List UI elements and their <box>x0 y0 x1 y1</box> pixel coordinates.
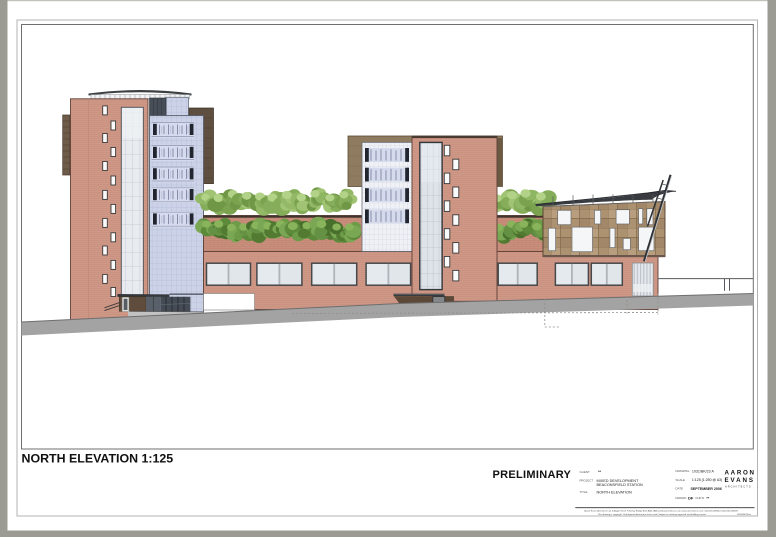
svg-text:DRAWN: DRAWN <box>676 496 687 500</box>
svg-text:1031/BK/23/xx: 1031/BK/23/xx <box>737 514 752 516</box>
svg-text:EVANS: EVANS <box>725 477 755 484</box>
svg-text:DATE: DATE <box>676 487 684 491</box>
svg-text:NORTH ELEVATION 1:125: NORTH ELEVATION 1:125 <box>22 452 174 466</box>
svg-text:1:125 (1:250 @ A3): 1:125 (1:250 @ A3) <box>692 478 722 482</box>
svg-text:DRAWING: DRAWING <box>676 469 691 473</box>
svg-text:SEPTEMBER 2006: SEPTEMBER 2006 <box>691 487 722 491</box>
svg-text:CHK'D: CHK'D <box>695 496 704 500</box>
svg-text:MIXED DEVELOPMENT: MIXED DEVELOPMENT <box>597 479 639 483</box>
svg-text:CLIENT: CLIENT <box>580 470 591 474</box>
svg-text:NORTH ELEVATION: NORTH ELEVATION <box>597 490 632 494</box>
svg-text:PROJECT: PROJECT <box>580 479 594 483</box>
svg-text:DF: DF <box>688 495 694 500</box>
svg-text:SCALE: SCALE <box>676 478 686 482</box>
svg-text:TITLE: TITLE <box>580 490 588 494</box>
svg-text:ARCHITECTS: ARCHITECTS <box>725 484 752 488</box>
svg-text:**: ** <box>706 495 710 500</box>
svg-text:1031/BK/23 A: 1031/BK/23 A <box>692 470 715 474</box>
svg-text:This drawing is copyright. Onl: This drawing is copyright. Only figured … <box>598 513 707 516</box>
svg-text:PRELIMINARY: PRELIMINARY <box>493 469 572 481</box>
svg-text:BEACONSFIELD STATION: BEACONSFIELD STATION <box>597 483 644 487</box>
svg-text:**: ** <box>598 469 602 474</box>
svg-text:Aaron Evans Architects Ltd, 3: Aaron Evans Architects Ltd, 3 Argyle Str… <box>584 510 738 513</box>
svg-text:AARON: AARON <box>725 469 756 476</box>
